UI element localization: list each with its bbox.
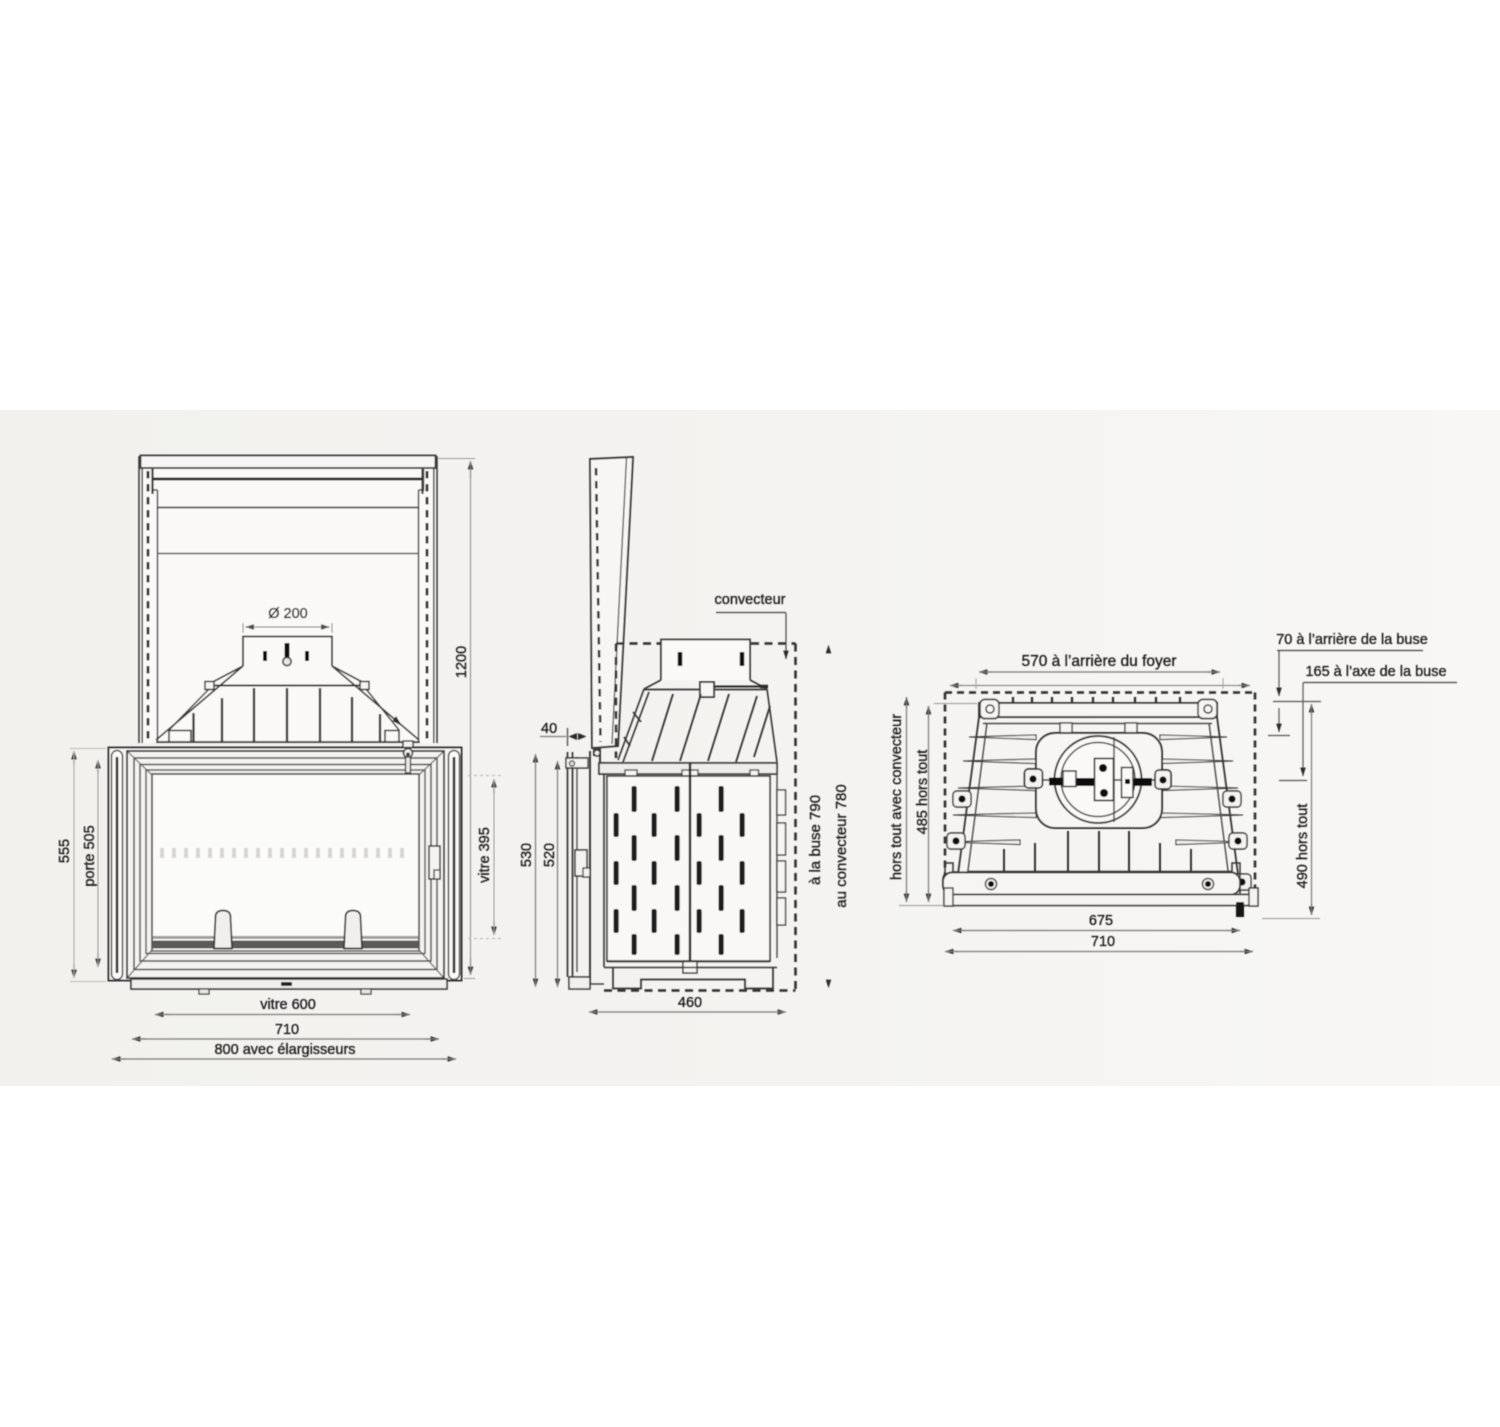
- svg-text:Ø 200: Ø 200: [268, 606, 308, 622]
- svg-text:570 à l’arrière du foyer: 570 à l’arrière du foyer: [1021, 653, 1176, 670]
- svg-text:convecteur: convecteur: [715, 592, 786, 608]
- svg-text:485 hors tout: 485 hors tout: [915, 750, 931, 835]
- svg-text:710: 710: [1091, 934, 1115, 950]
- svg-text:70 à l’arrière de la buse: 70 à l’arrière de la buse: [1276, 632, 1428, 648]
- svg-text:vitre 395: vitre 395: [477, 827, 493, 883]
- svg-text:165 à l’axe de la buse: 165 à l’axe de la buse: [1305, 664, 1446, 680]
- svg-text:hors tout avec convecteur: hors tout avec convecteur: [889, 714, 905, 880]
- svg-text:1200: 1200: [454, 646, 470, 678]
- svg-text:porte 505: porte 505: [82, 825, 98, 886]
- svg-text:460: 460: [678, 995, 702, 1011]
- svg-text:555: 555: [57, 839, 73, 863]
- svg-text:à la buse 790: à la buse 790: [807, 795, 824, 885]
- svg-text:800 avec élargisseurs: 800 avec élargisseurs: [214, 1042, 355, 1058]
- svg-text:710: 710: [275, 1022, 299, 1038]
- svg-text:490 hors tout: 490 hors tout: [1295, 804, 1311, 889]
- svg-text:530: 530: [519, 843, 535, 867]
- svg-text:au convecteur 780: au convecteur 780: [833, 784, 850, 907]
- svg-text:520: 520: [542, 843, 558, 867]
- svg-text:675: 675: [1089, 913, 1113, 929]
- svg-text:vitre 600: vitre 600: [260, 997, 316, 1013]
- svg-text:40: 40: [541, 721, 557, 737]
